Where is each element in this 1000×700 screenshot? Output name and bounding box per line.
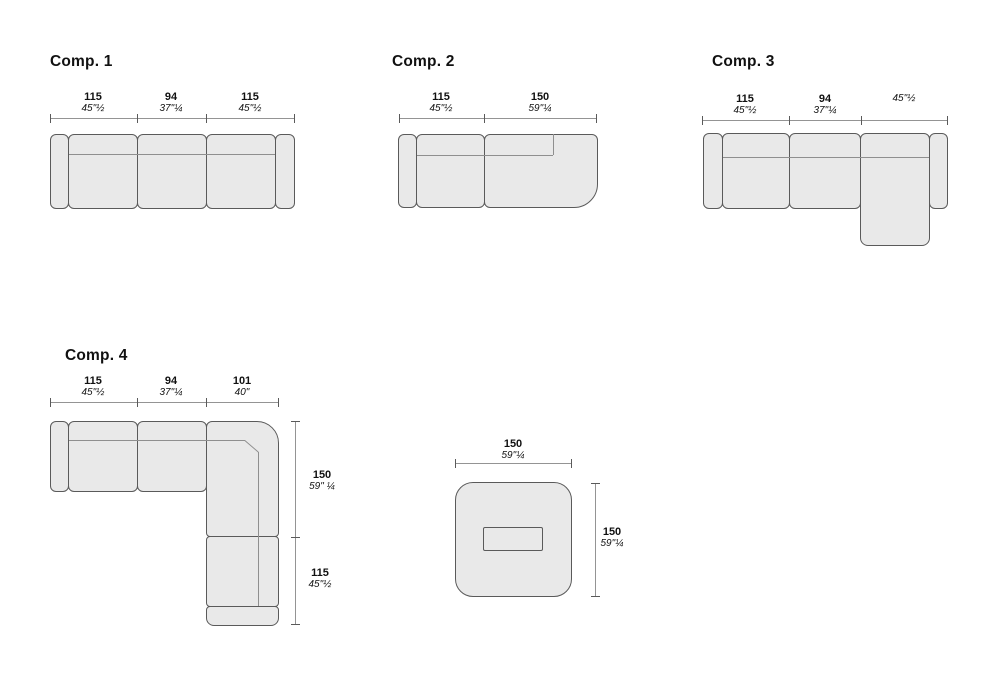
- comp3-backrest-line: [723, 157, 929, 158]
- comp2-backrest-line: [417, 155, 553, 156]
- comp2-seat-1: [416, 134, 485, 208]
- pouf-top-dimension-line: [455, 463, 572, 464]
- dim-tick: [861, 116, 862, 125]
- comp2-title: Comp. 2: [392, 53, 455, 71]
- comp1-dimension-line: [50, 118, 295, 119]
- dim-tick: [591, 596, 600, 597]
- dim-inch-value: 45"½: [81, 103, 104, 114]
- dim-tick: [206, 114, 207, 123]
- dim-tick: [50, 398, 51, 407]
- comp1-seat-3: [206, 134, 276, 209]
- comp4-dim-label-2: 94 37"¼: [159, 375, 182, 399]
- dim-cm-value: 115: [81, 91, 104, 103]
- comp3-dim-label-3: 45"½: [892, 93, 915, 104]
- sofa-technical-drawing-canvas: Comp. 1 115 45"½ 94 37"¼ 115 45"½ Comp. …: [0, 0, 1000, 700]
- dim-tick: [291, 624, 300, 625]
- comp3-chaise-longue: [860, 133, 930, 246]
- comp1-title: Comp. 1: [50, 53, 113, 71]
- comp4-top-dimension-line: [50, 402, 279, 403]
- comp1-left-armrest: [50, 134, 69, 209]
- comp2-dim-label-1: 115 45"½: [429, 91, 452, 115]
- dim-tick: [278, 398, 279, 407]
- dim-tick: [591, 483, 600, 484]
- comp4-backrest-line-horizontal: [69, 440, 245, 441]
- dim-tick: [947, 116, 948, 125]
- dim-tick: [137, 114, 138, 123]
- comp4-title: Comp. 4: [65, 347, 128, 365]
- dim-inch-value: 45"½: [238, 103, 261, 114]
- comp2-dim-label-2: 150 59"¼: [528, 91, 551, 115]
- comp4-bottom-armrest: [206, 606, 279, 626]
- comp1-seat-1: [68, 134, 138, 209]
- comp3-left-armrest: [703, 133, 723, 209]
- comp2-chaise-element: [484, 134, 598, 208]
- dim-inch-value: 45"½: [892, 93, 915, 104]
- dim-inch-value: 59"¼: [600, 538, 623, 549]
- pouf-top-dim-label: 150 59"¼: [501, 438, 524, 462]
- comp3-seat-1: [722, 133, 790, 209]
- dim-cm-value: 94: [813, 93, 836, 105]
- comp1-dim-label-3: 115 45"½: [238, 91, 261, 115]
- dim-inch-value: 59"¼: [528, 103, 551, 114]
- comp1-backrest-line: [69, 154, 275, 155]
- comp4-side-dimension-line: [295, 421, 296, 625]
- dim-inch-value: 59"¼: [501, 450, 524, 461]
- dim-inch-value: 45"½: [733, 105, 756, 116]
- dim-cm-value: 115: [81, 375, 104, 387]
- comp3-dim-label-2: 94 37"¼: [813, 93, 836, 117]
- dim-tick: [206, 398, 207, 407]
- comp1-seat-2: [137, 134, 207, 209]
- dim-inch-value: 59" ¼: [309, 481, 335, 492]
- comp3-dimension-line: [702, 120, 948, 121]
- dim-cm-value: 115: [429, 91, 452, 103]
- dim-cm-value: 94: [159, 375, 182, 387]
- dim-cm-value: 150: [600, 526, 623, 538]
- comp2-left-armrest: [398, 134, 417, 208]
- comp4-seat-1: [68, 421, 138, 492]
- comp3-dim-label-1: 115 45"½: [733, 93, 756, 117]
- dim-inch-value: 37"¼: [813, 105, 836, 116]
- dim-cm-value: 115: [733, 93, 756, 105]
- pouf-side-dim-label: 150 59"¼: [600, 526, 623, 550]
- dim-tick: [399, 114, 400, 123]
- comp4-dim-label-3: 101 40": [233, 375, 251, 399]
- dim-inch-value: 45"½: [429, 103, 452, 114]
- dim-tick: [291, 421, 300, 422]
- dim-tick: [50, 114, 51, 123]
- comp3-seat-2: [789, 133, 861, 209]
- comp4-corner-element: [206, 421, 279, 537]
- comp4-side-dim-label-1: 150 59" ¼: [309, 469, 335, 493]
- comp4-seat-3: [206, 536, 279, 607]
- dim-tick: [596, 114, 597, 123]
- comp1-right-armrest: [275, 134, 295, 209]
- dim-cm-value: 115: [308, 567, 331, 579]
- dim-cm-value: 150: [309, 469, 335, 481]
- comp4-dim-label-1: 115 45"½: [81, 375, 104, 399]
- dim-tick: [702, 116, 703, 125]
- comp4-left-armrest: [50, 421, 69, 492]
- dim-cm-value: 94: [159, 91, 182, 103]
- pouf-cushion-detail: [483, 527, 543, 551]
- comp4-backrest-line-vertical: [258, 452, 259, 606]
- dim-tick: [294, 114, 295, 123]
- dim-inch-value: 40": [233, 387, 251, 398]
- dim-cm-value: 115: [238, 91, 261, 103]
- comp2-dimension-line: [399, 118, 597, 119]
- comp1-dim-label-1: 115 45"½: [81, 91, 104, 115]
- comp3-right-armrest: [929, 133, 948, 209]
- dim-tick: [455, 459, 456, 468]
- comp2-backrest-end-line: [553, 134, 554, 155]
- dim-tick: [137, 398, 138, 407]
- comp1-dim-label-2: 94 37"¼: [159, 91, 182, 115]
- dim-inch-value: 37"¼: [159, 103, 182, 114]
- pouf-side-dimension-line: [595, 483, 596, 597]
- comp4-seat-2: [137, 421, 207, 492]
- dim-inch-value: 45"½: [308, 579, 331, 590]
- dim-cm-value: 150: [501, 438, 524, 450]
- dim-cm-value: 150: [528, 91, 551, 103]
- dim-tick: [484, 114, 485, 123]
- dim-tick: [571, 459, 572, 468]
- dim-inch-value: 45"½: [81, 387, 104, 398]
- dim-cm-value: 101: [233, 375, 251, 387]
- comp4-side-dim-label-2: 115 45"½: [308, 567, 331, 591]
- dim-tick: [291, 537, 300, 538]
- dim-inch-value: 37"¼: [159, 387, 182, 398]
- comp3-title: Comp. 3: [712, 53, 775, 71]
- dim-tick: [789, 116, 790, 125]
